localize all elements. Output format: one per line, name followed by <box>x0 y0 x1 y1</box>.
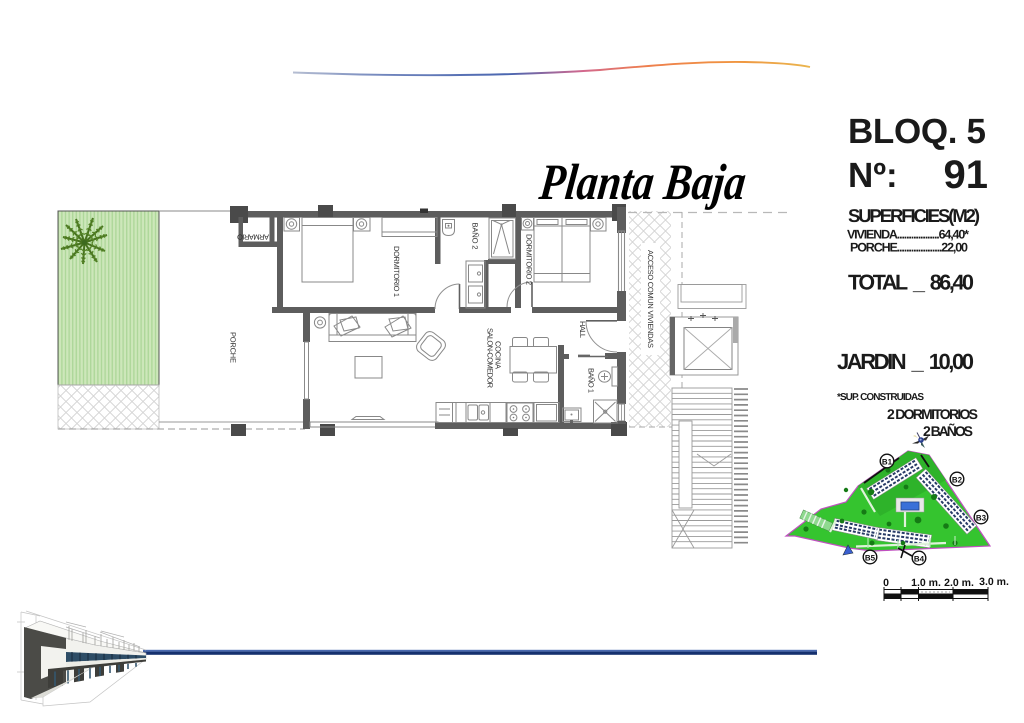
svg-text:*SUP. CONSTRUIDAS: *SUP. CONSTRUIDAS <box>837 392 924 403</box>
svg-text:TOTAL _ 86,40: TOTAL _ 86,40 <box>848 271 974 295</box>
svg-text:VIVIENDA..................64,4: VIVIENDA..................64,40* <box>847 228 969 242</box>
svg-text:PORCHE...................22,00: PORCHE...................22,00 <box>850 241 968 255</box>
svg-text:PORCHE: PORCHE <box>229 332 238 363</box>
svg-text:2 BAÑOS: 2 BAÑOS <box>923 423 973 439</box>
svg-text:Nº:: Nº: <box>848 156 898 195</box>
svg-text:B1: B1 <box>882 458 893 467</box>
svg-text:91: 91 <box>944 153 989 197</box>
svg-text:SUPERFICIES(M2): SUPERFICIES(M2) <box>848 205 980 226</box>
svg-text:ARMARIO: ARMARIO <box>237 233 269 242</box>
svg-text:HALL: HALL <box>578 321 587 338</box>
svg-text:ACCESO COMUN VIVIENDAS: ACCESO COMUN VIVIENDAS <box>646 250 655 348</box>
svg-text:3.0 m.: 3.0 m. <box>979 576 1009 588</box>
svg-text:B2: B2 <box>952 476 963 485</box>
svg-text:B3: B3 <box>976 514 987 523</box>
svg-text:DORMITORIO 2: DORMITORIO 2 <box>525 234 534 285</box>
svg-text:JARDIN _ 10,00: JARDIN _ 10,00 <box>837 349 974 374</box>
svg-text:DORMITORIO 1: DORMITORIO 1 <box>392 246 401 297</box>
svg-text:BAÑO 1: BAÑO 1 <box>587 368 596 393</box>
svg-text:Planta Baja: Planta Baja <box>536 155 749 211</box>
svg-text:BAÑO 2: BAÑO 2 <box>471 223 480 250</box>
svg-text:2 DORMITORIOS: 2 DORMITORIOS <box>887 406 978 422</box>
svg-text:1.0 m.: 1.0 m. <box>911 577 941 589</box>
svg-text:BLOQ. 5: BLOQ. 5 <box>848 112 986 151</box>
svg-text:B4: B4 <box>914 555 925 564</box>
svg-text:SALON-COMEDOR: SALON-COMEDOR <box>486 328 495 389</box>
svg-text:COCINA: COCINA <box>494 341 503 369</box>
svg-text:2.0 m.: 2.0 m. <box>944 577 974 589</box>
svg-text:B5: B5 <box>865 554 876 563</box>
